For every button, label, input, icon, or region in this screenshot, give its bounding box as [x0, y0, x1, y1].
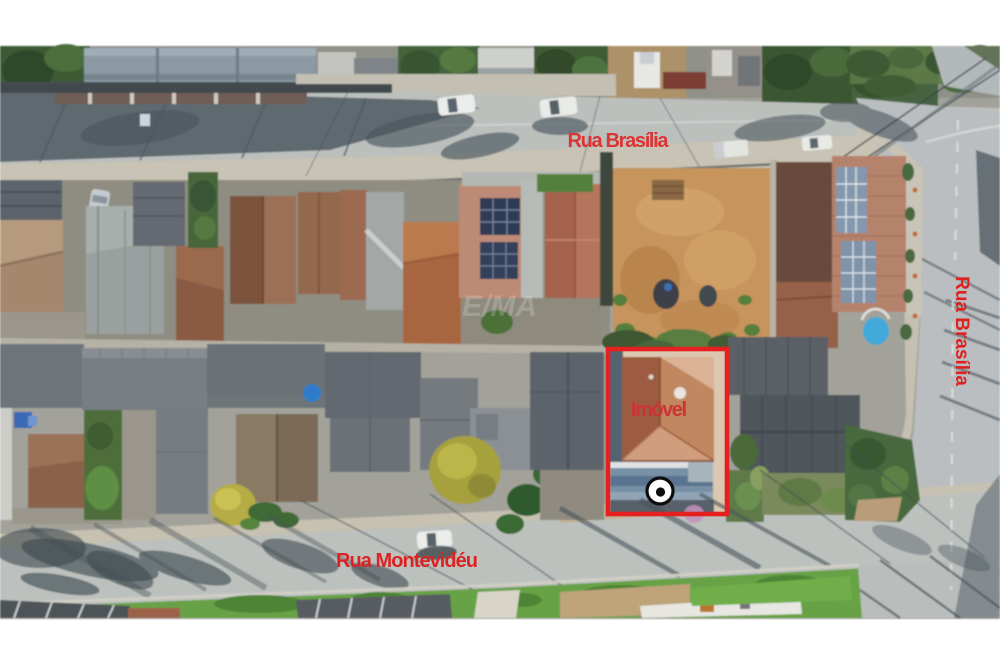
svg-text:E/MA: E/MA — [462, 290, 537, 323]
svg-text:Rua Brasília: Rua Brasília — [951, 276, 972, 386]
svg-text:Imóvel: Imóvel — [631, 399, 687, 421]
svg-text:Rua Brasília: Rua Brasília — [568, 130, 670, 152]
svg-text:Rua Montevidéu: Rua Montevidéu — [336, 550, 478, 572]
